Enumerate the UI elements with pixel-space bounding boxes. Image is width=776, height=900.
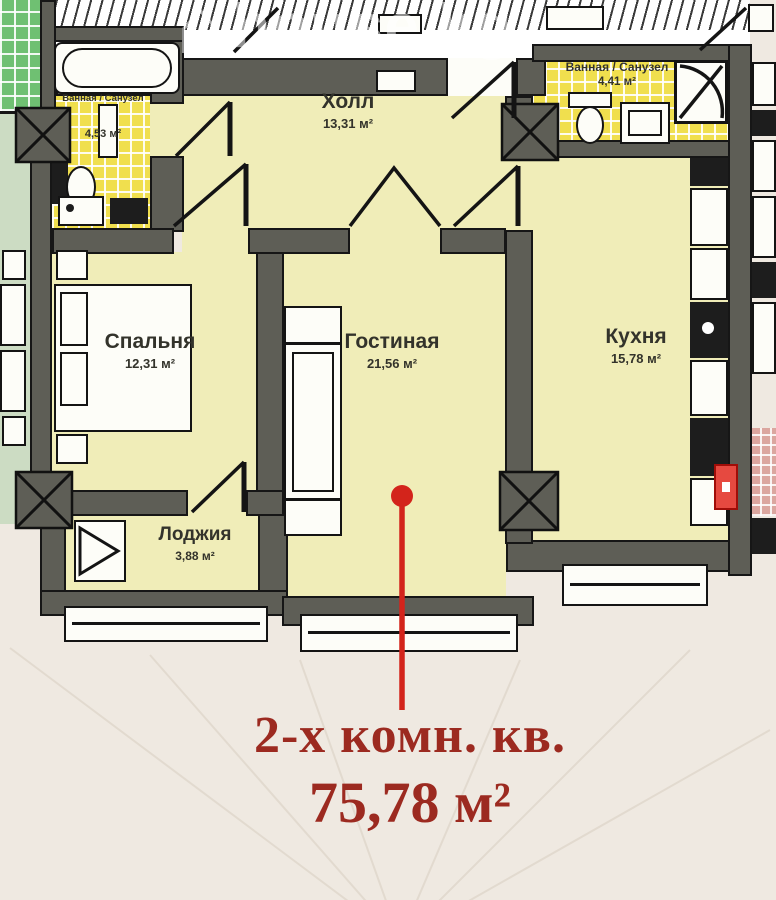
room-area: 21,56 м² xyxy=(312,356,472,371)
adjacent-unit-fixture xyxy=(748,4,774,32)
adjacent-nightstand xyxy=(2,416,26,446)
room-area: 15,78 м² xyxy=(556,351,716,366)
bathtub-basin-icon xyxy=(62,48,172,88)
room-name: Гостиная xyxy=(312,330,472,353)
adjacent-fixture xyxy=(752,110,776,136)
floor-plan: Холл 13,31 м² Ванная / Санузел 4,53 м² В… xyxy=(0,0,776,900)
wall xyxy=(52,490,188,516)
room-area: 13,31 м² xyxy=(268,116,428,131)
kitchen-window-glazing xyxy=(570,583,700,586)
adjacent-nightstand xyxy=(2,250,26,280)
kitchen-unit-icon xyxy=(690,158,728,186)
wardrobe-divider xyxy=(286,498,340,501)
room-area: 4,41 м² xyxy=(537,76,697,88)
wardrobe-inner xyxy=(292,352,334,492)
washing-machine-icon xyxy=(58,196,104,226)
wall xyxy=(505,230,533,544)
corridor-vent-window xyxy=(378,14,422,34)
kitchen-unit-icon xyxy=(690,248,728,300)
room-label-bathroom-left: Ванная / Санузел 4,53 м² xyxy=(56,94,150,140)
toilet-icon xyxy=(576,106,604,144)
nightstand-icon xyxy=(56,250,88,280)
adjacent-fixture xyxy=(752,518,776,554)
room-label-kitchen: Кухня 15,78 м² xyxy=(556,325,716,366)
adjacent-fixture xyxy=(752,302,776,374)
wall xyxy=(248,228,350,254)
sink-basin-icon xyxy=(628,110,662,136)
adjacent-fixture xyxy=(752,140,776,192)
adjacent-fixture xyxy=(752,262,776,298)
room-label-living: Гостиная 21,56 м² xyxy=(312,330,472,371)
wall xyxy=(40,526,66,598)
callout-title: 2-х комн. кв. xyxy=(140,706,680,765)
adjacent-bed xyxy=(0,350,26,412)
kitchen-sink-icon xyxy=(690,360,728,416)
room-name: Ванная / Санузел xyxy=(537,61,697,74)
room-label-hall: Холл 13,31 м² xyxy=(268,90,428,131)
adjacent-fixture xyxy=(752,62,776,106)
apartment-callout: 2-х комн. кв. 75,78 м² xyxy=(140,706,680,836)
wall xyxy=(30,112,52,478)
doorway-bathroom-left xyxy=(150,102,184,158)
wall xyxy=(505,140,732,158)
room-area: 12,31 м² xyxy=(70,356,230,371)
living-window-glazing xyxy=(308,631,510,634)
wall-vent-inset xyxy=(376,70,416,92)
kitchen-unit-icon xyxy=(690,188,728,246)
wall xyxy=(440,228,506,254)
room-name: Кухня xyxy=(556,325,716,348)
room-area: 3,88 м² xyxy=(115,549,275,563)
callout-total-area: 75,78 м² xyxy=(140,769,680,836)
room-name: Лоджия xyxy=(115,525,275,546)
washer-knob xyxy=(66,204,74,212)
wall xyxy=(256,252,284,494)
room-name: Спальня xyxy=(70,330,230,353)
wall xyxy=(246,490,284,516)
doorway-kitchen xyxy=(505,150,533,234)
room-name: Холл xyxy=(268,90,428,113)
adjacent-bathroom-tiles xyxy=(750,428,776,516)
nightstand-icon xyxy=(56,434,88,464)
room-area: 4,53 м² xyxy=(56,128,150,140)
room-label-bathroom-right: Ванная / Санузел 4,41 м² xyxy=(537,61,697,88)
room-name: Ванная / Санузел xyxy=(56,94,150,104)
bathroom-shelf xyxy=(110,198,148,224)
entrance-opening xyxy=(448,58,516,96)
radiator-detail xyxy=(722,482,730,492)
loggia-window-glazing xyxy=(72,622,260,625)
adjacent-fixture xyxy=(752,196,776,258)
room-label-bedroom: Спальня 12,31 м² xyxy=(70,330,230,371)
room-label-loggia: Лоджия 3,88 м² xyxy=(115,525,275,563)
adjacent-bed xyxy=(0,284,26,346)
wall xyxy=(150,156,184,232)
corridor-door-panel xyxy=(546,6,604,30)
